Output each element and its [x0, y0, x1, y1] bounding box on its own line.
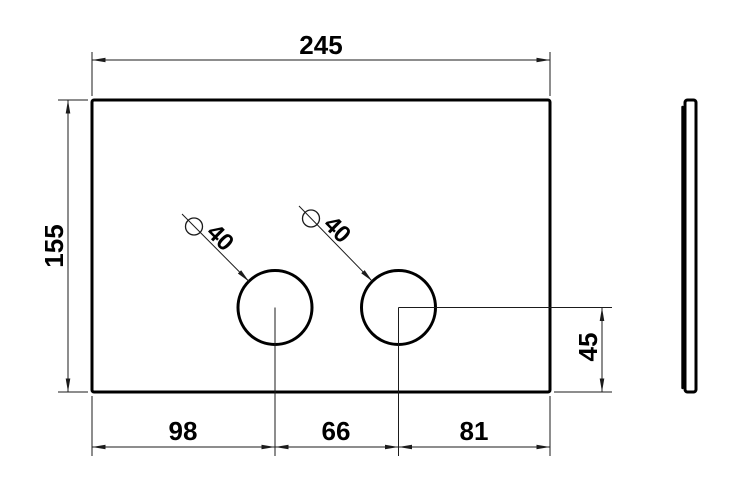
dimension-middle-span-label: 66 [322, 416, 351, 446]
dimension-width-label: 245 [299, 30, 342, 60]
dimension-height: 155 [39, 100, 88, 392]
technical-drawing-canvas: 245 155 98 66 81 45 [0, 0, 750, 480]
flush-plate-dimension-drawing: 245 155 98 66 81 45 [0, 0, 750, 480]
dimension-left-span-label: 98 [169, 416, 198, 446]
dimension-height-label: 155 [39, 224, 69, 267]
side-view [683, 100, 697, 392]
front-view [92, 100, 550, 392]
side-view-profile [685, 100, 696, 392]
dimension-hole-height-label: 45 [573, 333, 603, 362]
dimension-width: 245 [92, 30, 550, 96]
plate-outline [92, 100, 550, 392]
dimension-right-span-label: 81 [460, 416, 489, 446]
